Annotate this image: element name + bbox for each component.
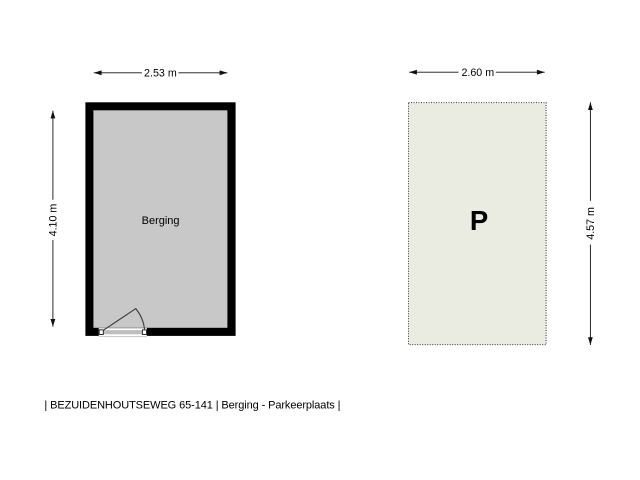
svg-text:4.57 m: 4.57 m <box>585 207 597 240</box>
svg-text:2.53 m: 2.53 m <box>144 67 177 79</box>
svg-text:4.10 m: 4.10 m <box>48 204 60 237</box>
svg-text:2.60 m: 2.60 m <box>461 67 494 79</box>
svg-text:| BEZUIDENHOUTSEWEG 65-141 | B: | BEZUIDENHOUTSEWEG 65-141 | Berging - P… <box>44 400 340 412</box>
svg-text:Berging: Berging <box>142 215 180 227</box>
svg-text:P: P <box>470 205 488 236</box>
